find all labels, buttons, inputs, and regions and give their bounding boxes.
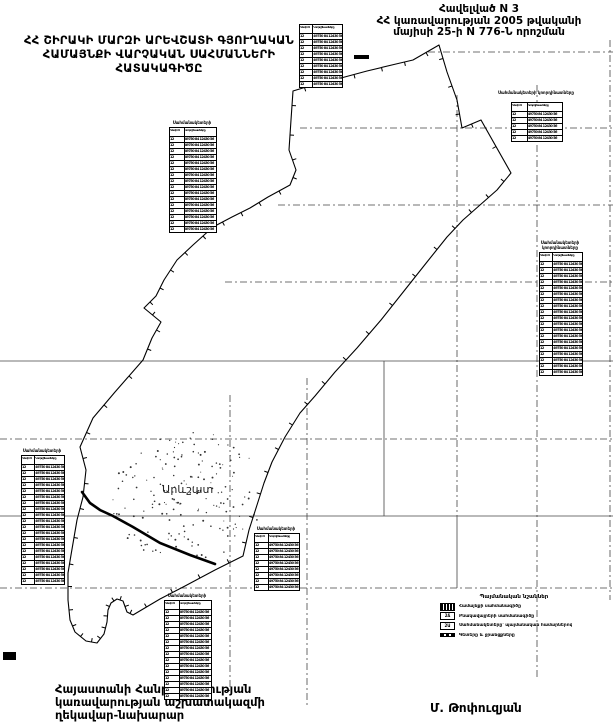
table-cell-coords: 49750 84 12430 56: [179, 646, 212, 651]
table-row: 1249750 84 12430 56: [22, 512, 64, 518]
table-header-coords: Կոորդինատները: [34, 456, 64, 464]
signature-block-left: Հայաստանի Հանրապետության կառավարության ա…: [55, 683, 265, 722]
table-cell-point: 12: [300, 40, 312, 45]
table-row: 1249750 84 12430 56: [165, 663, 211, 669]
table-header-coords: Կոորդինատները: [527, 103, 562, 111]
table-cell-coords: 49750 84 12430 56: [312, 34, 342, 39]
table-cell-point: 12: [22, 561, 34, 566]
table-row: 1249750 84 12430 56: [540, 357, 582, 363]
table-row: 1249750 84 12430 56: [255, 578, 299, 584]
table-row: 1249750 84 12430 56: [540, 261, 582, 267]
table-cell-point: 12: [22, 483, 34, 488]
table-cell-point: 12: [22, 477, 34, 482]
table-row: 1249750 84 12430 56: [255, 542, 299, 548]
table-cell-coords: 49750 84 12430 56: [184, 173, 217, 178]
table-row: 1249750 84 12430 56: [255, 566, 299, 572]
table-cell-point: 12: [165, 658, 179, 663]
table-cell-coords: 49750 84 12430 56: [552, 310, 582, 315]
table-row: 1249750 84 12430 56: [255, 548, 299, 554]
table-row: 1249750 84 12430 56: [540, 363, 582, 369]
table-row: 1249750 84 12430 56: [300, 75, 342, 81]
table-cell-point: 12: [300, 34, 312, 39]
table-row: 1249750 84 12430 56: [165, 609, 211, 615]
table-cell-point: 12: [512, 136, 527, 141]
table-row: 1249750 84 12430 56: [170, 178, 216, 184]
table-row: 1249750 84 12430 56: [170, 220, 216, 226]
table-cell-point: 12: [170, 197, 184, 202]
table-row: 1249750 84 12430 56: [170, 196, 216, 202]
table-row: 1249750 84 12430 56: [170, 226, 216, 232]
table-cell-coords: 49750 84 12430 56: [552, 304, 582, 309]
legend-item: 2ԱՍահմանակետերը՝ պայմանական համարներով: [440, 623, 600, 629]
table-cell-coords: 49750 84 12430 56: [184, 209, 217, 214]
table-cell-coords: 49750 84 12430 56: [34, 531, 64, 536]
table-cell-coords: 49750 84 12430 56: [312, 82, 342, 87]
table-header-point: Կետի N: [22, 456, 34, 464]
table-cell-coords: 49750 84 12430 56: [184, 227, 217, 232]
table-row: 1249750 84 12430 56: [300, 39, 342, 45]
table-cell-coords: 49750 84 12430 56: [552, 316, 582, 321]
boundary-annotation-smudge: [354, 55, 369, 59]
appendix-number: Հավելված N 3: [350, 4, 608, 16]
table-row: 1249750 84 12430 56: [165, 693, 211, 699]
table-cell-point: 12: [540, 346, 552, 351]
table-cell-coords: 49750 84 12430 56: [184, 185, 217, 190]
table-row: 1249750 84 12430 56: [165, 639, 211, 645]
table-cell-coords: 49750 84 12430 56: [184, 197, 217, 202]
table-cell-coords: 49750 84 12430 56: [268, 555, 299, 560]
table-row: 1249750 84 12430 56: [540, 333, 582, 339]
table-cell-point: 12: [255, 573, 268, 578]
table-cell-coords: 49750 84 12430 56: [179, 628, 212, 633]
table-cell-point: 12: [540, 358, 552, 363]
table-cell-coords: 49750 84 12430 56: [184, 179, 217, 184]
table-cell-coords: 49750 84 12430 56: [268, 567, 299, 572]
table-cell-point: 12: [540, 364, 552, 369]
table-row: 1249750 84 12430 56: [512, 123, 562, 129]
table-cell-coords: 49750 84 12430 56: [34, 555, 64, 560]
parcel-code-symbol: 2Ճ: [440, 612, 455, 620]
table-title: Սահմանակետերի կոորդինատները: [7, 448, 77, 453]
table-title: Սահմանակետերի կոորդինատները: [155, 120, 229, 125]
table-row: 1249750 84 12430 56: [165, 633, 211, 639]
table-cell-coords: 49750 84 12430 56: [179, 652, 212, 657]
table-header-coords: Կոորդինատները: [268, 534, 299, 542]
table-cell-point: 12: [22, 519, 34, 524]
table-cell-point: 12: [22, 495, 34, 500]
table-row: 1249750 84 12430 56: [300, 57, 342, 63]
table-cell-coords: 49750 84 12430 56: [552, 286, 582, 291]
table-header-row: Կետի NԿոորդինատները: [22, 456, 64, 464]
table-row: 1249750 84 12430 56: [22, 506, 64, 512]
table-cell-coords: 49750 84 12430 56: [552, 262, 582, 267]
table-title: Սահմանակետերի կոորդինատները: [240, 526, 312, 531]
map-sheet: Հավելված N 3 ՀՀ կառավարության 2005 թվակա…: [0, 0, 613, 726]
table-cell-coords: 49750 84 12430 56: [312, 40, 342, 45]
table-cell-coords: 49750 84 12430 56: [527, 112, 562, 117]
appendix-header: Հավելված N 3 ՀՀ կառավարության 2005 թվակա…: [350, 4, 608, 39]
table-row: 1249750 84 12430 56: [170, 160, 216, 166]
river-line: [82, 492, 215, 564]
table-cell-coords: 49750 84 12430 56: [312, 46, 342, 51]
table-cell-coords: 49750 84 12430 56: [552, 358, 582, 363]
footer-line3: ղեկավար-նախարար: [55, 709, 265, 722]
table-cell-coords: 49750 84 12430 56: [179, 682, 212, 687]
table-row: 1249750 84 12430 56: [255, 554, 299, 560]
table-title: Սահմանակետերի կոորդինատները: [497, 90, 575, 100]
table-cell-point: 12: [300, 64, 312, 69]
table-cell-coords: 49750 84 12430 56: [552, 280, 582, 285]
table-title: Սահմանակետերի կոորդինատները: [525, 240, 595, 250]
table-cell-coords: 49750 84 12430 56: [552, 364, 582, 369]
table-row: 1249750 84 12430 56: [170, 172, 216, 178]
table-cell-point: 12: [540, 268, 552, 273]
table-cell-point: 12: [22, 465, 34, 470]
table-cell-coords: 49750 84 12430 56: [552, 346, 582, 351]
coordinate-table-coords-right-small: Կետի NԿոորդինատները1249750 84 12430 5612…: [511, 102, 563, 142]
table-row: 1249750 84 12430 56: [22, 488, 64, 494]
table-cell-coords: 49750 84 12430 56: [184, 221, 217, 226]
table-cell-point: 12: [170, 149, 184, 154]
map-title: ՀՀ ՇԻՐԱԿԻ ՄԱՐԶԻ ԱՐԵՎՇԱՏԻ ԳՅՈՒՂԱԿԱՆ ՀԱՄԱՅ…: [18, 33, 300, 75]
table-row: 1249750 84 12430 56: [540, 369, 582, 375]
table-cell-coords: 49750 84 12430 56: [34, 489, 64, 494]
table-cell-coords: 49750 84 12430 56: [34, 561, 64, 566]
table-cell-point: 12: [165, 694, 179, 699]
table-cell-coords: 49750 84 12430 56: [527, 124, 562, 129]
table-cell-coords: 49750 84 12430 56: [184, 149, 217, 154]
table-cell-coords: 49750 84 12430 56: [552, 352, 582, 357]
table-cell-coords: 49750 84 12430 56: [527, 136, 562, 141]
table-cell-coords: 49750 84 12430 56: [34, 483, 64, 488]
table-cell-coords: 49750 84 12430 56: [552, 268, 582, 273]
table-cell-coords: 49750 84 12430 56: [179, 634, 212, 639]
table-header-point: Կետի N: [540, 253, 552, 261]
table-row: 1249750 84 12430 56: [540, 315, 582, 321]
table-cell-point: 12: [512, 118, 527, 123]
table-cell-coords: 49750 84 12430 56: [34, 519, 64, 524]
table-cell-coords: 49750 84 12430 56: [179, 640, 212, 645]
table-row: 1249750 84 12430 56: [540, 273, 582, 279]
coordinate-table-coords-right-long: Կետի NԿոորդինատները1249750 84 12430 5612…: [539, 252, 583, 376]
table-cell-point: 12: [165, 682, 179, 687]
table-cell-point: 12: [540, 280, 552, 285]
table-cell-point: 12: [170, 167, 184, 172]
table-row: 1249750 84 12430 56: [22, 578, 64, 584]
table-row: 1249750 84 12430 56: [300, 45, 342, 51]
table-cell-point: 12: [22, 567, 34, 572]
coordinate-table-coords-center: Կետի NԿոորդինատները1249750 84 12430 5612…: [254, 533, 300, 591]
table-cell-coords: 49750 84 12430 56: [268, 585, 299, 590]
table-row: 1249750 84 12430 56: [22, 560, 64, 566]
table-row: 1249750 84 12430 56: [22, 464, 64, 470]
table-cell-coords: 49750 84 12430 56: [179, 694, 212, 699]
table-cell-point: 12: [165, 640, 179, 645]
table-cell-coords: 49750 84 12430 56: [179, 688, 212, 693]
table-cell-coords: 49750 84 12430 56: [527, 130, 562, 135]
table-header-coords: Կոորդինատները: [312, 25, 342, 33]
table-header-coords: Կոորդինատները: [184, 128, 217, 136]
table-cell-coords: 49750 84 12430 56: [552, 292, 582, 297]
table-cell-point: 12: [170, 227, 184, 232]
table-cell-coords: 49750 84 12430 56: [312, 76, 342, 81]
table-cell-point: 12: [22, 501, 34, 506]
table-cell-point: 12: [22, 543, 34, 548]
table-cell-coords: 49750 84 12430 56: [34, 537, 64, 542]
table-row: 1249750 84 12430 56: [540, 345, 582, 351]
table-cell-point: 12: [165, 628, 179, 633]
table-cell-point: 12: [22, 525, 34, 530]
table-cell-point: 12: [165, 664, 179, 669]
table-cell-coords: 49750 84 12430 56: [34, 501, 64, 506]
table-cell-point: 12: [22, 555, 34, 560]
table-cell-point: 12: [255, 561, 268, 566]
table-cell-coords: 49750 84 12430 56: [179, 670, 212, 675]
table-cell-point: 12: [165, 676, 179, 681]
table-cell-coords: 49750 84 12430 56: [552, 370, 582, 375]
table-cell-point: 12: [255, 585, 268, 590]
table-row: 1249750 84 12430 56: [22, 530, 64, 536]
table-header-coords: Կոորդինատները: [179, 601, 212, 609]
table-cell-coords: 49750 84 12430 56: [268, 573, 299, 578]
table-row: 1249750 84 12430 56: [165, 627, 211, 633]
table-cell-point: 12: [170, 143, 184, 148]
table-cell-coords: 49750 84 12430 56: [184, 161, 217, 166]
point-number-symbol: 2Ա: [440, 622, 455, 630]
table-row: 1249750 84 12430 56: [22, 548, 64, 554]
table-cell-coords: 49750 84 12430 56: [552, 340, 582, 345]
table-cell-coords: 49750 84 12430 56: [312, 58, 342, 63]
table-row: 1249750 84 12430 56: [300, 51, 342, 57]
table-cell-point: 12: [540, 292, 552, 297]
table-cell-coords: 49750 84 12430 56: [184, 143, 217, 148]
table-cell-point: 12: [255, 579, 268, 584]
table-cell-coords: 49750 84 12430 56: [34, 507, 64, 512]
signature-name: Մ. Թոփուզյան: [430, 701, 522, 715]
table-cell-point: 12: [300, 82, 312, 87]
table-row: 1249750 84 12430 56: [540, 309, 582, 315]
table-row: 1249750 84 12430 56: [22, 572, 64, 578]
table-cell-point: 12: [540, 370, 552, 375]
table-cell-coords: 49750 84 12430 56: [184, 167, 217, 172]
table-cell-point: 12: [540, 274, 552, 279]
table-cell-coords: 49750 84 12430 56: [179, 658, 212, 663]
table-cell-coords: 49750 84 12430 56: [34, 513, 64, 518]
table-cell-coords: 49750 84 12430 56: [552, 334, 582, 339]
table-cell-point: 12: [540, 328, 552, 333]
table-cell-coords: 49750 84 12430 56: [34, 579, 64, 584]
table-row: 1249750 84 12430 56: [165, 675, 211, 681]
table-cell-point: 12: [540, 304, 552, 309]
table-cell-coords: 49750 84 12430 56: [312, 64, 342, 69]
table-row: 1249750 84 12430 56: [540, 291, 582, 297]
table-cell-point: 12: [540, 334, 552, 339]
table-cell-coords: 49750 84 12430 56: [184, 137, 217, 142]
table-row: 1249750 84 12430 56: [255, 584, 299, 590]
table-row: 1249750 84 12430 56: [165, 687, 211, 693]
table-cell-coords: 49750 84 12430 56: [552, 298, 582, 303]
table-cell-coords: 49750 84 12430 56: [552, 274, 582, 279]
table-cell-point: 12: [540, 316, 552, 321]
table-cell-point: 12: [300, 58, 312, 63]
table-cell-point: 12: [300, 76, 312, 81]
table-row: 1249750 84 12430 56: [170, 148, 216, 154]
table-row: 1249750 84 12430 56: [512, 111, 562, 117]
table-cell-point: 12: [540, 262, 552, 267]
table-row: 1249750 84 12430 56: [512, 129, 562, 135]
table-cell-point: 12: [170, 155, 184, 160]
table-row: 1249750 84 12430 56: [22, 482, 64, 488]
table-cell-point: 12: [165, 616, 179, 621]
table-row: 1249750 84 12430 56: [22, 500, 64, 506]
table-cell-point: 12: [22, 507, 34, 512]
table-cell-coords: 49750 84 12430 56: [184, 155, 217, 160]
table-row: 1249750 84 12430 56: [540, 285, 582, 291]
table-cell-point: 12: [540, 310, 552, 315]
table-header-point: Կետի N: [170, 128, 184, 136]
table-cell-coords: 49750 84 12430 56: [34, 543, 64, 548]
table-cell-point: 12: [22, 513, 34, 518]
table-cell-coords: 49750 84 12430 56: [268, 549, 299, 554]
table-row: 1249750 84 12430 56: [165, 681, 211, 687]
table-cell-point: 12: [22, 489, 34, 494]
coordinate-table-coords-top: Կետի NԿոորդինատները1249750 84 12430 5612…: [299, 24, 343, 88]
map-legend: Պայմանական նշաններ Համայնքի սահմանագիծը2…: [440, 594, 600, 638]
legend-item: Գետերը և ջրանցքները: [440, 632, 600, 638]
legend-label: Համայնքի սահմանագիծը: [459, 604, 521, 609]
table-cell-point: 12: [22, 471, 34, 476]
table-cell-point: 12: [255, 549, 268, 554]
table-header-row: Կետի NԿոորդինատները: [300, 25, 342, 33]
table-header-point: Կետի N: [255, 534, 268, 542]
table-row: 1249750 84 12430 56: [540, 321, 582, 327]
table-cell-point: 12: [170, 137, 184, 142]
table-cell-point: 12: [255, 543, 268, 548]
table-row: 1249750 84 12430 56: [512, 117, 562, 123]
table-header-point: Կետի N: [165, 601, 179, 609]
map-title-line3: ՀԱՏԱԿԱԳԻԾԸ: [18, 61, 300, 75]
table-cell-coords: 49750 84 12430 56: [34, 573, 64, 578]
table-cell-point: 12: [165, 688, 179, 693]
table-cell-point: 12: [300, 46, 312, 51]
table-cell-coords: 49750 84 12430 56: [34, 525, 64, 530]
table-cell-point: 12: [170, 215, 184, 220]
table-header-row: Կետի NԿոորդինատները: [512, 103, 562, 111]
table-row: 1249750 84 12430 56: [165, 651, 211, 657]
table-cell-point: 12: [540, 298, 552, 303]
table-header-row: Կետի NԿոորդինատները: [255, 534, 299, 542]
table-row: 1249750 84 12430 56: [22, 542, 64, 548]
table-cell-point: 12: [170, 185, 184, 190]
water-line-symbol: [440, 633, 455, 637]
table-row: 1249750 84 12430 56: [22, 470, 64, 476]
table-cell-point: 12: [300, 70, 312, 75]
decree-line2: մայիսի 25-ի N 776-Ն որոշման: [350, 27, 608, 39]
table-cell-point: 12: [540, 352, 552, 357]
table-cell-coords: 49750 84 12430 56: [34, 549, 64, 554]
corner-mark: [3, 652, 16, 660]
table-row: 1249750 84 12430 56: [165, 669, 211, 675]
table-row: 1249750 84 12430 56: [540, 351, 582, 357]
table-cell-point: 12: [170, 161, 184, 166]
table-cell-point: 12: [170, 173, 184, 178]
settlement-label: Արևշատ: [162, 483, 213, 496]
table-cell-point: 12: [22, 537, 34, 542]
table-row: 1249750 84 12430 56: [165, 645, 211, 651]
table-row: 1249750 84 12430 56: [540, 279, 582, 285]
table-row: 1249750 84 12430 56: [255, 572, 299, 578]
table-cell-coords: 49750 84 12430 56: [184, 215, 217, 220]
table-cell-point: 12: [540, 286, 552, 291]
table-title: Սահմանակետերի կոորդինատները: [150, 593, 224, 598]
table-cell-coords: 49750 84 12430 56: [268, 579, 299, 584]
table-cell-point: 12: [170, 209, 184, 214]
table-row: 1249750 84 12430 56: [22, 566, 64, 572]
table-row: 1249750 84 12430 56: [170, 214, 216, 220]
table-row: 1249750 84 12430 56: [540, 267, 582, 273]
table-cell-point: 12: [512, 124, 527, 129]
table-row: 1249750 84 12430 56: [540, 327, 582, 333]
table-cell-coords: 49750 84 12430 56: [268, 561, 299, 566]
table-cell-coords: 49750 84 12430 56: [179, 664, 212, 669]
table-cell-point: 12: [540, 340, 552, 345]
table-row: 1249750 84 12430 56: [512, 135, 562, 141]
table-cell-point: 12: [165, 670, 179, 675]
table-row: 1249750 84 12430 56: [170, 166, 216, 172]
table-row: 1249750 84 12430 56: [170, 136, 216, 142]
table-cell-coords: 49750 84 12430 56: [179, 616, 212, 621]
table-cell-coords: 49750 84 12430 56: [34, 495, 64, 500]
table-cell-point: 12: [22, 549, 34, 554]
table-row: 1249750 84 12430 56: [170, 184, 216, 190]
table-cell-point: 12: [165, 622, 179, 627]
table-cell-coords: 49750 84 12430 56: [179, 622, 212, 627]
table-cell-coords: 49750 84 12430 56: [184, 203, 217, 208]
table-cell-coords: 49750 84 12430 56: [268, 543, 299, 548]
table-cell-coords: 49750 84 12430 56: [184, 191, 217, 196]
table-row: 1249750 84 12430 56: [165, 621, 211, 627]
table-header-row: Կետի NԿոորդինատները: [170, 128, 216, 136]
table-header-coords: Կոորդինատները: [552, 253, 582, 261]
table-row: 1249750 84 12430 56: [300, 69, 342, 75]
table-row: 1249750 84 12430 56: [170, 190, 216, 196]
table-cell-coords: 49750 84 12430 56: [34, 465, 64, 470]
table-cell-coords: 49750 84 12430 56: [34, 477, 64, 482]
table-row: 1249750 84 12430 56: [170, 142, 216, 148]
table-row: 1249750 84 12430 56: [300, 33, 342, 39]
table-cell-point: 12: [255, 555, 268, 560]
table-row: 1249750 84 12430 56: [165, 657, 211, 663]
table-cell-coords: 49750 84 12430 56: [179, 676, 212, 681]
table-row: 1249750 84 12430 56: [22, 524, 64, 530]
coordinate-table-coords-bottom: Կետի NԿոորդինատները1249750 84 12430 5612…: [164, 600, 212, 700]
table-cell-point: 12: [170, 203, 184, 208]
table-row: 1249750 84 12430 56: [165, 615, 211, 621]
table-cell-point: 12: [170, 221, 184, 226]
table-cell-point: 12: [255, 567, 268, 572]
table-cell-point: 12: [22, 579, 34, 584]
boundary-line-symbol: [440, 603, 455, 611]
table-header-row: Կետի NԿոորդինատները: [165, 601, 211, 609]
table-row: 1249750 84 12430 56: [22, 494, 64, 500]
table-cell-coords: 49750 84 12430 56: [34, 567, 64, 572]
map-title-line2: ՀԱՄԱՅՆՔԻ ՎԱՐՉԱԿԱՆ ՍԱՀՄԱՆՆԵՐԻ: [18, 47, 300, 61]
table-cell-coords: 49750 84 12430 56: [179, 610, 212, 615]
table-header-point: Կետի N: [300, 25, 312, 33]
table-cell-point: 12: [170, 179, 184, 184]
table-cell-point: 12: [165, 610, 179, 615]
table-cell-coords: 49750 84 12430 56: [552, 322, 582, 327]
